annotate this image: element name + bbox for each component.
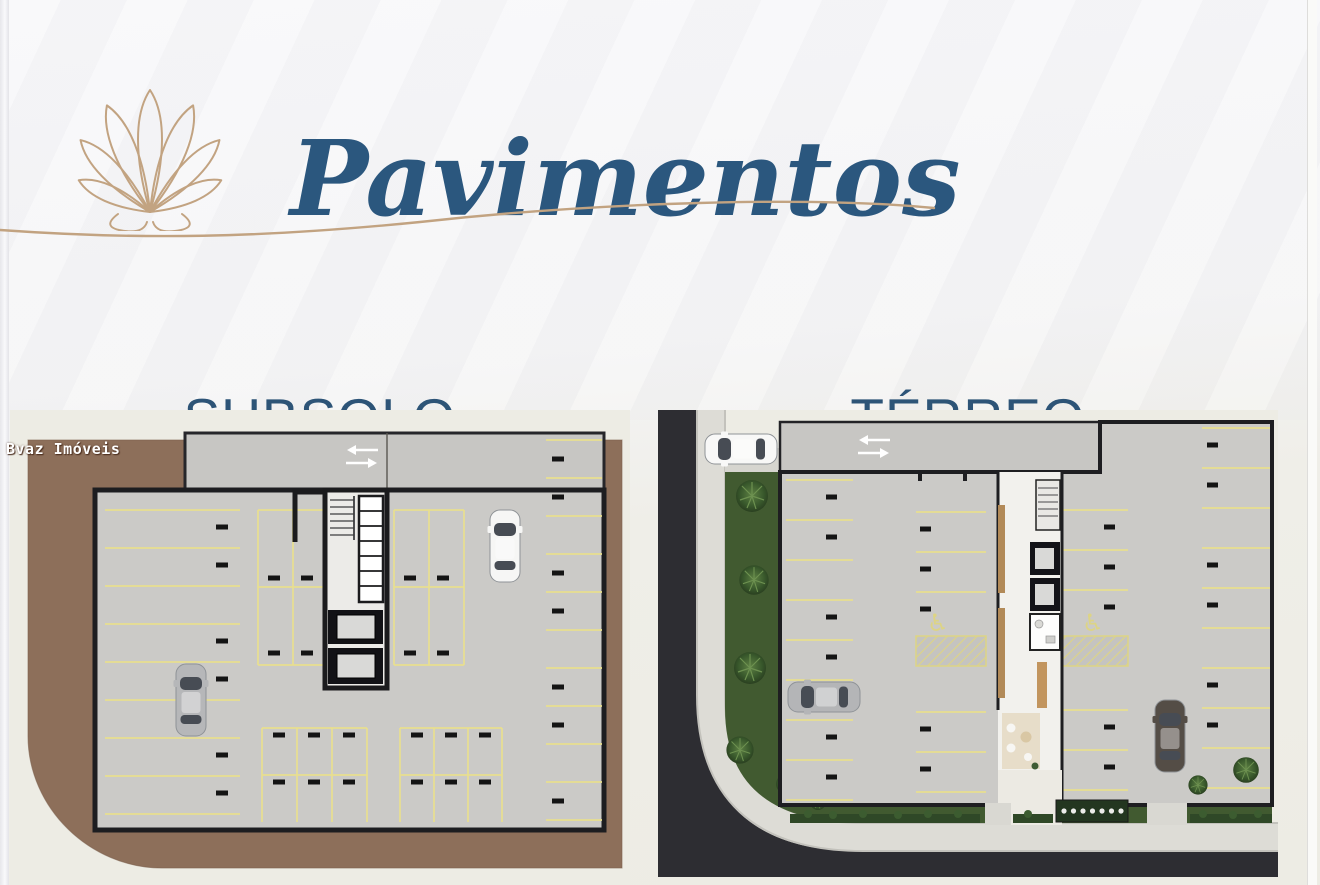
brochure-page: { "header": { "title": "Pavimentos" }, "… (0, 0, 1320, 885)
accessible-parking-icon: ♿ (927, 609, 949, 637)
page-edge-right (1308, 0, 1317, 885)
hedges (790, 810, 1272, 823)
gold-divider (0, 186, 940, 249)
lobby (998, 472, 1062, 805)
subsolo-floorplan (10, 410, 630, 885)
car-dark-parked (1153, 700, 1188, 772)
car-silver (174, 664, 209, 736)
lounge-seating (1002, 713, 1040, 770)
watermark: Bvaz Imóveis (6, 440, 120, 458)
car-silver-parked (788, 680, 860, 715)
terreo-floorplan: ♿ ♿ (658, 410, 1278, 885)
car-white (488, 510, 523, 582)
palm-tree-icon (1233, 757, 1259, 783)
palm-tree-icon (1188, 775, 1207, 794)
accessible-parking-icon: ♿ (1082, 609, 1104, 637)
terreo-driveway (780, 422, 1100, 472)
car-white-street (705, 432, 777, 467)
restroom (1030, 614, 1060, 650)
reception-desk (1037, 662, 1047, 708)
ramp-driveway (185, 433, 604, 490)
planter-with-lamps (1056, 800, 1128, 822)
